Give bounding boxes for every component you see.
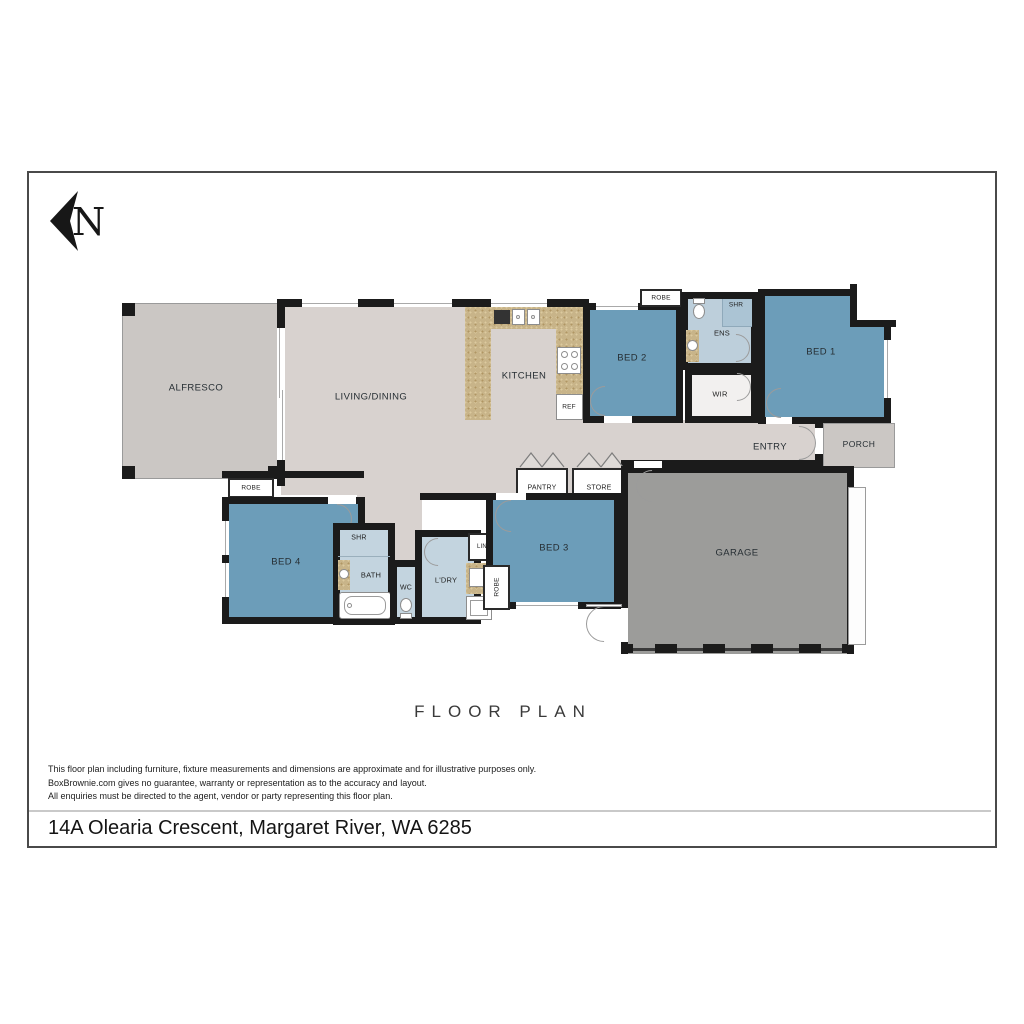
garage-pier <box>799 644 821 653</box>
alfresco-post <box>122 303 135 316</box>
label-bed3: BED 3 <box>539 543 568 554</box>
disclaimer-line: This floor plan including furniture, fix… <box>48 763 536 777</box>
label-robe-bed4: ROBE <box>241 485 260 492</box>
disclaimer-line: BoxBrownie.com gives no guarantee, warra… <box>48 777 536 791</box>
label-robe-bed3: ROBE <box>494 577 501 596</box>
basin-icon <box>687 340 698 351</box>
property-address: 14A Olearia Crescent, Margaret River, WA… <box>48 817 472 840</box>
door-gap <box>604 416 632 423</box>
bifold-door-icon <box>575 451 625 468</box>
bath-divider <box>338 556 390 557</box>
label-garage: GARAGE <box>715 548 758 559</box>
label-shr-ens: SHR <box>729 302 743 309</box>
window <box>222 563 229 597</box>
garage-door <box>848 487 866 645</box>
label-bed4: BED 4 <box>271 557 300 568</box>
label-bath: BATH <box>361 571 381 580</box>
garage-pier <box>842 644 854 653</box>
door-gap <box>634 461 662 468</box>
label-shr-bath: SHR <box>351 535 366 542</box>
floor-plan-page: N ALFRESCO REF KITCHEN L <box>0 0 1024 1024</box>
label-robe-bed2: ROBE <box>651 295 670 302</box>
bifold-door-icon <box>518 451 566 468</box>
garage-pier <box>751 644 773 653</box>
label-ref: REF <box>562 404 576 411</box>
label-ens: ENS <box>714 329 730 338</box>
door-leaf <box>586 604 622 607</box>
label-alfresco: ALFRESCO <box>169 383 223 394</box>
toilet-icon <box>692 298 706 320</box>
label-laundry: L'DRY <box>435 576 457 585</box>
label-living-dining: LIVING/DINING <box>335 392 407 403</box>
alfresco-post <box>122 466 135 479</box>
garage-pier <box>621 644 633 653</box>
bed1-notch <box>850 284 896 327</box>
window <box>394 299 452 307</box>
window <box>491 299 547 307</box>
label-bed2: BED 2 <box>617 353 646 364</box>
kitchen-sink-icon <box>494 309 540 325</box>
address-divider <box>29 810 991 812</box>
disclaimer-line: All enquiries must be directed to the ag… <box>48 790 536 804</box>
garage-pier <box>703 644 725 653</box>
window <box>884 340 891 398</box>
north-arrow-icon: N <box>44 189 108 253</box>
label-entry: ENTRY <box>753 442 787 453</box>
sliding-door <box>277 328 285 460</box>
cooktop-icon <box>557 347 581 374</box>
garage-pier <box>655 644 677 653</box>
label-pantry: PANTRY <box>528 485 557 492</box>
door-gap <box>328 497 356 504</box>
window <box>302 299 358 307</box>
label-porch: PORCH <box>843 439 876 449</box>
basin-icon <box>339 569 349 579</box>
label-kitchen: KITCHEN <box>502 371 547 382</box>
wall <box>222 471 364 478</box>
window <box>516 602 578 609</box>
window <box>596 303 638 310</box>
wall <box>420 493 490 500</box>
label-store: STORE <box>587 485 612 492</box>
label-wc: WC <box>400 585 412 592</box>
disclaimer-text: This floor plan including furniture, fix… <box>48 763 536 804</box>
toilet-icon <box>399 598 413 619</box>
label-bed1: BED 1 <box>806 347 835 358</box>
svg-text:N: N <box>72 200 105 244</box>
plan-title: FLOOR PLAN <box>414 702 592 722</box>
kitchen-bench <box>465 307 491 420</box>
bathtub-icon <box>339 592 391 619</box>
window <box>222 521 229 555</box>
